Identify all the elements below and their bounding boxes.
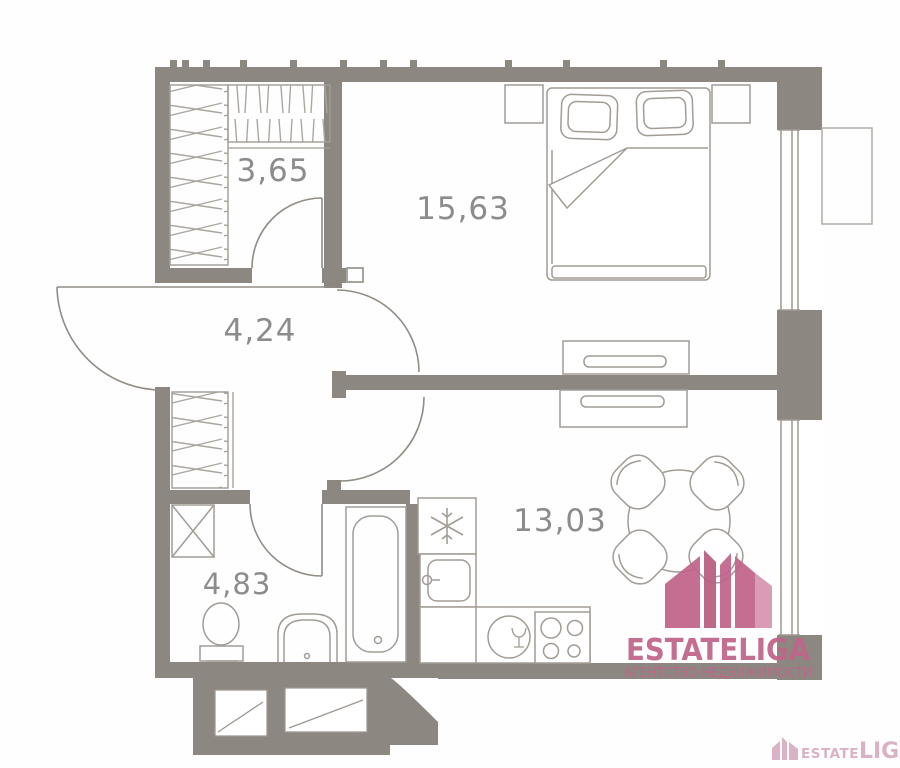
kitchen-area-label: 13,03 xyxy=(513,503,607,539)
floorplan-canvas: 3,65 4,24 4,83 xyxy=(0,0,900,768)
wall-mid-divider xyxy=(332,375,777,390)
tv-console-bedroom xyxy=(563,341,689,374)
closet-hanging-rail xyxy=(228,85,330,142)
bathroom-area-label: 4,83 xyxy=(203,567,272,601)
wall-mid-stub xyxy=(332,371,346,398)
wall-bath-bottom xyxy=(155,662,420,678)
logo-name-text: ESTATELIGA xyxy=(626,633,811,668)
closet-wardrobe-left xyxy=(170,85,228,265)
watermark-liga: LIGA xyxy=(859,739,900,764)
watermark-estate: ESTATE xyxy=(801,746,859,762)
stove xyxy=(535,612,590,663)
floorplan-image: 3,65 4,24 4,83 xyxy=(0,0,900,768)
wall-left-upper xyxy=(155,67,170,283)
bedroom-area-label: 15,63 xyxy=(416,191,510,227)
hallway-area-label: 4,24 xyxy=(223,313,296,349)
hall-wardrobe xyxy=(172,392,228,488)
wall-bath-north-left xyxy=(170,490,250,504)
wall-bath-north-right xyxy=(322,490,410,504)
wall-right-mid xyxy=(777,310,822,420)
bedroom-window-opening xyxy=(777,130,822,310)
wall-top xyxy=(155,67,822,82)
kitchen-sink-unit xyxy=(420,554,476,607)
logo-tagline-text: АГЕНТСТВО НЕДВИЖИМОСТИ xyxy=(624,666,812,681)
wall-right-corner xyxy=(777,67,822,130)
wall-closet-bottom xyxy=(155,268,252,283)
wall-left-lower xyxy=(155,387,170,678)
refrigerator xyxy=(418,498,476,554)
kitchen-window-opening xyxy=(777,420,822,635)
bed xyxy=(547,88,710,280)
tv-console-kitchen xyxy=(560,390,687,427)
closet-area-label: 3,65 xyxy=(236,153,309,189)
